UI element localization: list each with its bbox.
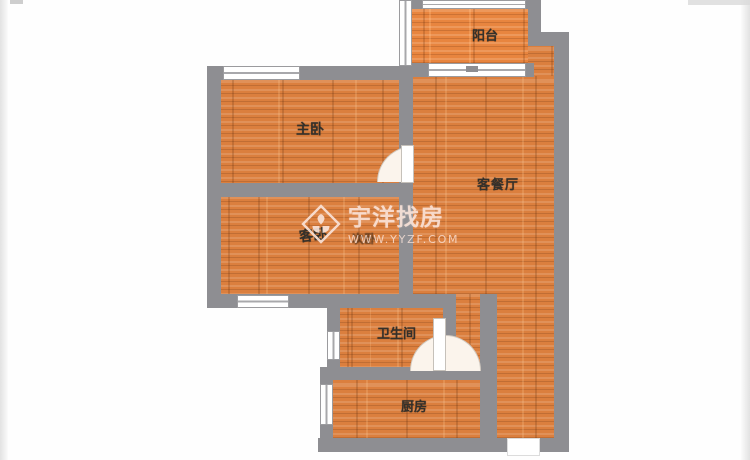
master-bedroom-label: 主卧 [296, 119, 324, 139]
master-bedroom-window [223, 66, 300, 80]
photo-topright-smudge [688, 0, 750, 5]
bathroom-door-leaf [433, 318, 446, 371]
photo-left-edge [0, 0, 8, 460]
master-bedroom-door-leaf [401, 145, 414, 183]
wall-center-vertical [399, 66, 413, 308]
photo-right-edge [741, 0, 750, 460]
balcony-label: 阳台 [472, 25, 498, 44]
kitchen-label: 厨房 [401, 396, 427, 415]
wall-right [554, 32, 569, 452]
bathroom-label: 卫生间 [377, 323, 416, 342]
balcony-floor [412, 8, 529, 65]
guest-bedroom-label: 客卧 [298, 224, 328, 247]
balcony-left-window [399, 0, 412, 66]
living-dining-label: 客餐厅 [477, 174, 519, 193]
photo-topleft-speck [10, 0, 23, 4]
guest-bedroom-original-label: 次卧 [352, 230, 376, 247]
balcony-top-window [422, 0, 526, 9]
balcony-slider-tick [466, 66, 478, 72]
wall-master-guest-divider [207, 183, 400, 197]
floorplan-image: 阳台 主卧 客餐厅 客卧 次卧 卫生间 厨房 宇洋找房 WWW.YYZF.COM [0, 0, 750, 460]
kitchen-window [320, 384, 333, 425]
guest-bedroom-window [237, 295, 289, 308]
bathroom-window [327, 331, 340, 360]
entry-door-opening [507, 438, 540, 456]
